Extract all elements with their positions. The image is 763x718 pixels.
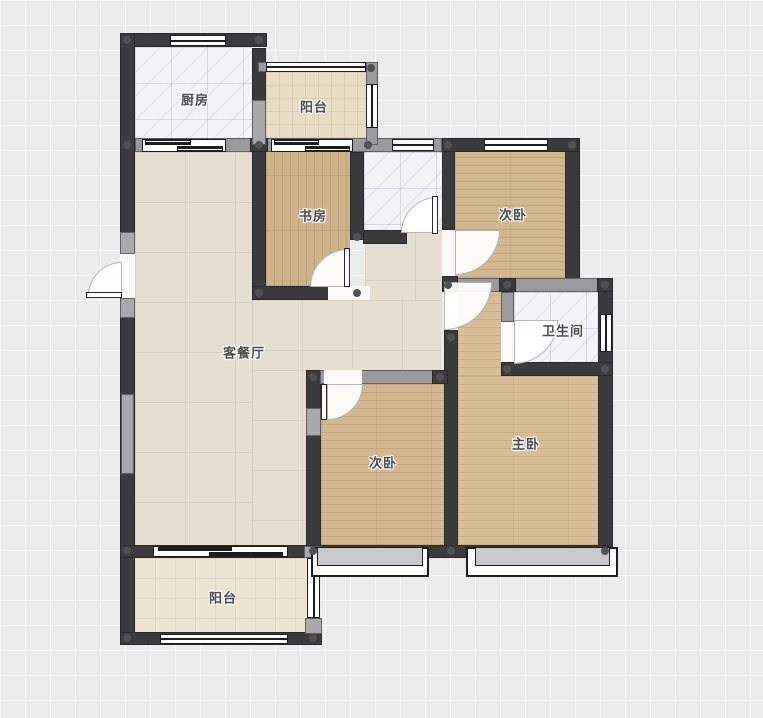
- bedroom-top-window[interactable]: [484, 139, 548, 151]
- column-kitchen-divider: [252, 100, 266, 145]
- label-balcony-bottom: 阳台: [209, 588, 237, 607]
- wall-kitchen-divider: [252, 48, 266, 300]
- master-bedroom-floor[interactable]: [458, 376, 598, 545]
- column-left-mid: [120, 298, 135, 318]
- wall-bedroom-top-right: [565, 138, 580, 292]
- living-floor-bottom[interactable]: [252, 370, 306, 545]
- balcony-top-window[interactable]: [266, 62, 366, 72]
- wall-junction-dot: [309, 634, 317, 642]
- balcony-top-side-window[interactable]: [366, 84, 378, 128]
- bedroom-bottom-door-opening: [324, 370, 362, 384]
- wall-junction-dot: [568, 141, 576, 149]
- label-living-dining: 客餐厅: [223, 343, 265, 362]
- entry-door-swing[interactable]: [88, 262, 122, 296]
- living-balcony-sliding-door[interactable]: [153, 546, 288, 557]
- kitchen-window[interactable]: [170, 35, 226, 46]
- wall-bedroom-bottom-left: [306, 370, 321, 558]
- wall-junction-dot: [503, 365, 511, 373]
- wall-junction-dot: [601, 281, 609, 289]
- bedroom-bottom-door-leaf[interactable]: [321, 384, 327, 420]
- wall-junction-dot: [364, 141, 372, 149]
- wall-junction-dot: [123, 547, 131, 555]
- label-kitchen: 厨房: [181, 90, 209, 109]
- wall-junction-dot: [123, 36, 131, 44]
- bedroom-top-door-opening: [442, 230, 455, 276]
- label-bathroom: 卫生间: [542, 321, 584, 340]
- wall-junction-dot: [601, 365, 609, 373]
- study-door-opening: [328, 286, 370, 300]
- wall-junction-dot: [503, 281, 511, 289]
- wall-junction-dot: [367, 64, 375, 72]
- wall-bathroom-left: [501, 292, 514, 322]
- bedroom-bottom-bay-sill: [317, 547, 423, 566]
- kitchen-sliding-door[interactable]: [142, 139, 226, 152]
- living-floor-mid[interactable]: [252, 300, 442, 370]
- wall-junction-dot: [601, 547, 609, 555]
- master-bay-sill: [475, 547, 610, 566]
- wall-junction-dot: [447, 333, 455, 341]
- label-master-bedroom: 主卧: [512, 434, 540, 453]
- bathroom-door-opening: [501, 322, 514, 362]
- wall-master-left: [444, 330, 458, 558]
- wall-bathroom-bottom: [501, 362, 613, 376]
- wall-junction-dot: [447, 547, 455, 555]
- entry-hall-door-leaf[interactable]: [432, 196, 438, 234]
- label-balcony-top: 阳台: [300, 97, 328, 116]
- column-balcony-corner-bottom: [305, 618, 322, 634]
- wall-junction-dot: [255, 289, 263, 297]
- entry-door-leaf[interactable]: [86, 292, 122, 298]
- balcony-bottom-window[interactable]: [160, 634, 288, 644]
- bathroom-window[interactable]: [600, 314, 612, 352]
- study-door-leaf[interactable]: [344, 248, 350, 287]
- wall-junction-dot: [353, 289, 361, 297]
- column-left-lower: [121, 394, 134, 474]
- column-bb-left: [306, 408, 321, 436]
- wall-junction-dot: [309, 547, 317, 555]
- wall-study-right: [350, 152, 364, 240]
- wall-junction-dot: [444, 281, 452, 289]
- label-bedroom-bottom: 次卧: [369, 453, 397, 472]
- column-left-upper: [120, 232, 135, 254]
- label-bedroom-top: 次卧: [499, 205, 527, 224]
- wall-junction-dot: [255, 141, 263, 149]
- wall-junction-dot: [444, 141, 452, 149]
- balcony-study-sliding-door[interactable]: [271, 139, 353, 152]
- wall-junction-dot: [309, 373, 317, 381]
- wall-junction-dot: [353, 233, 361, 241]
- wall-junction-dot: [123, 634, 131, 642]
- entry-hall-window[interactable]: [392, 139, 434, 151]
- entry-door-opening: [120, 254, 135, 298]
- wall-junction-dot: [123, 141, 131, 149]
- floor-plan-canvas: 厨房 阳台 书房 次卧 卫生间 客餐厅 次卧 主卧 阳台: [0, 0, 763, 718]
- wall-junction-dot: [436, 373, 444, 381]
- label-study: 书房: [299, 206, 327, 225]
- wall-junction-dot: [255, 36, 263, 44]
